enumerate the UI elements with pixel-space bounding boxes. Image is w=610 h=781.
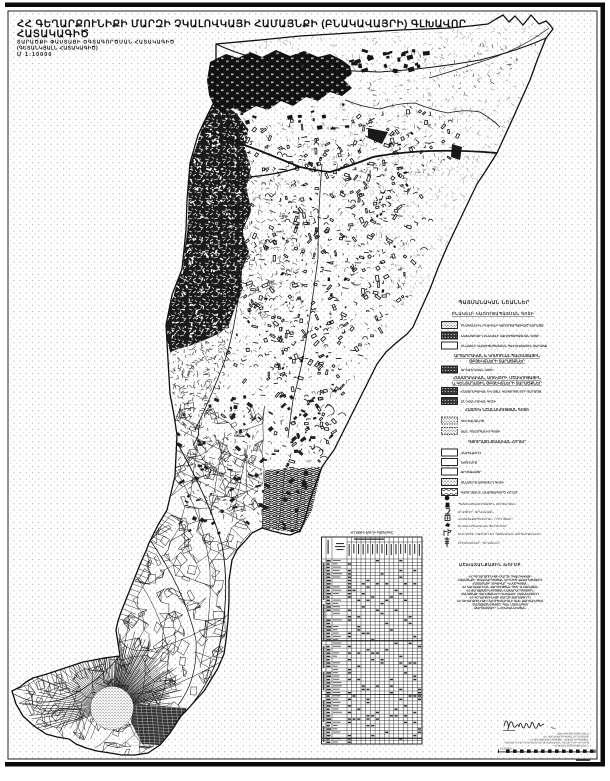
svg-text:ՆԱԽԱԳԾՎՈՂ ԲՆԱԿԵԼԻ ԿԱՌՈՒՑԱՊԱՏՄԱ: ՆԱԽԱԳԾՎՈՂ ԲՆԱԿԵԼԻ ԿԱՌՈՒՑԱՊԱՏՄԱՆ ԳՈՏԻ — [460, 334, 540, 338]
svg-text:ԱՐՈՏԱՎԱՅՐ: ԱՐՈՏԱՎԱՅՐ — [461, 470, 482, 474]
svg-text:ԱՐՏԱԴՐԱԿԱՆ ԳՈՏԻ: ԱՐՏԱԴՐԱԿԱՆ ԳՈՏԻ — [461, 368, 494, 372]
svg-text:ՀԱՍԱՐԱԿԱԿԱՆ ԵՎ ԱՅԼՆ ԿԱՌՈՒՅՑՆԵՐ: ՀԱՍԱՐԱԿԱԿԱՆ ԵՎ ԱՅԼՆ ԿԱՌՈՒՅՑՆԵՐԻ ՏԱՐԱԾՔ — [461, 390, 542, 394]
svg-text:ԵԿԵՂԵՑԻ, ՄԱՏՈՒՌ ԵՎ ՊԱՏՄԱԿԱՆ ՀՈ: ԵԿԵՂԵՑԻ, ՄԱՏՈՒՌ ԵՎ ՊԱՏՄԱԿԱՆ ՀՈՒՇԱՐՁԱՆՆԵՐ — [458, 532, 542, 536]
svg-text:ԽՈՏՀԱՐՔ: ԽՈՏՀԱՐՔ — [461, 461, 478, 465]
svg-text:ԳՅՈՒՂԱՏՆՏԵՍԱԿԱՆ ՀՈՂԵՐ: ԳՅՈՒՂԱՏՆՏԵՍԱԿԱՆ ՀՈՂԵՐ — [468, 439, 526, 444]
svg-text:և ԿԵՆՑԱՂԱՅԻՆ ՕԲՅԵԿՏՆԵՐԻ ՏԱՐԱԾՔ: և ԿԵՆՑԱՂԱՅԻՆ ՕԲՅԵԿՏՆԵՐԻ ՏԱՐԱԾՔՆԵՐ — [452, 381, 542, 386]
svg-text:ՏՆԱՄԵՐՁ-ԱՅԳԵՏԵՂ ԳՈՏԻ: ՏՆԱՄԵՐՁ-ԱՅԳԵՏԵՂ ԳՈՏԻ — [461, 481, 505, 485]
svg-text:ՍԱՆ. ՊԱՇՏՊԱՆԻՉ ԳՈՏԻ: ՍԱՆ. ՊԱՇՏՊԱՆԻՉ ԳՈՏԻ — [461, 430, 501, 434]
svg-text:ՏԱՐԱԾՔԻ ՓԱՍՏԱՑԻ ՕԳՏԱԳՈՐԾՄԱՆ ՀԱ: ՏԱՐԱԾՔԻ ՓԱՍՏԱՑԻ ՕԳՏԱԳՈՐԾՄԱՆ ՀԱՏԱԿԱԳԻԾ — [17, 39, 175, 46]
svg-text:ՀԱՏՈՒԿ ՆՇԱՆԱԿՈՒԹՅԱՆ ԳՈՏԻ: ՀԱՏՈՒԿ ՆՇԱՆԱԿՈՒԹՅԱՆ ԳՈՏԻ — [465, 407, 529, 412]
svg-text:ԱՐՏԱԴՐԱԿԱՆ և ԿՈՄՈՒՆԱԼ-ՊԱՀԵՍՏԱՅ: ԱՐՏԱԴՐԱԿԱՆ և ԿՈՄՈՒՆԱԼ-ՊԱՀԵՍՏԱՅԻՆ — [454, 353, 540, 358]
svg-text:ԲՆԱԿԵԼԻ ԿԱՌՈՒՑԱՊԱՏՄԱՆ ԳՈՏԻ: ԲՆԱԿԵԼԻ ԿԱՌՈՒՑԱՊԱՏՄԱՆ ԳՈՏԻ — [452, 311, 534, 316]
svg-text:ՊԱՏՄԱՄՇԱԿՈՒԹԱՅԻՆ ՀՈՒՇԱՐՁԱՆ: ՊԱՏՄԱՄՇԱԿՈՒԹԱՅԻՆ ՀՈՒՇԱՐՁԱՆ — [458, 502, 516, 506]
svg-text:ԳՅՈՒՂԱՏՆՏ. ԱՆՕԳՏԱԳՈՐԾ ՀՈՂԵՐ: ԳՅՈՒՂԱՏՆՏ. ԱՆՕԳՏԱԳՈՐԾ ՀՈՂԵՐ — [461, 491, 519, 495]
svg-text:0 100 200: 0 100 200 — [500, 747, 512, 751]
svg-text:ՀԱՍԱՐԱԿԱԿԱՆ, ԱՌԵՎՏՐԻ, ՄՇԱԿՈՒԹԱ: ՀԱՍԱՐԱԿԱԿԱՆ, ԱՌԵՎՏՐԻ, ՄՇԱԿՈՒԹԱՅԻՆ — [453, 375, 541, 380]
svg-text:ՕԲՅԵԿՏՆԵՐԻ ՏԱՐԱԾՔՆԵՐ: ՕԲՅԵԿՏՆԵՐԻ ՏԱՐԱԾՔՆԵՐ — [469, 359, 525, 364]
svg-text:ՀԱՏԱԿԱԳԻԾ: ՀԱՏԱԿԱԳԻԾ — [17, 29, 89, 40]
svg-text:ՀԱՄԱՅՆՔԱՊԵՏԱՐԱՆ, ԴՊՐՈՑՆԵՐ: ՀԱՄԱՅՆՔԱՊԵՏԱՐԱՆ, ԴՊՐՈՑՆԵՐ — [458, 517, 513, 521]
svg-text:ԲՆԱԿԵԼԻՈՎ, ԲՆԱԿԵԼԻ ԿԱՌՈՒՑԱՊԱՏՎ: ԲՆԱԿԵԼԻՈՎ, ԲՆԱԿԵԼԻ ԿԱՌՈՒՑԱՊԱՏՎԱԾ ՏԱՐԱԾՔ — [461, 324, 544, 328]
svg-text:ԳԵՐԵԶՄԱՆՈՑ: ԳԵՐԵԶՄԱՆՈՑ — [461, 419, 485, 423]
svg-text:ԱՂԲՅՈՒՐ, ՋՐԱՎԱԶԱՆ: ԱՂԲՅՈՒՐ, ՋՐԱՎԱԶԱՆ — [458, 510, 494, 514]
svg-text:ԲՆԱԿԵԼԻ ԿԱՌՈՒՑԱՊԱՏՄԱՆ ՊԱՀՈՒՍՏԱ: ԲՆԱԿԵԼԻ ԿԱՌՈՒՑԱՊԱՏՄԱՆ ՊԱՀՈՒՍՏԱՅԻՆ ՏԱՐԱԾՔ — [461, 344, 548, 348]
svg-text:ԸՆԴՀԱՆՐԱԿԱՆ ԳՈՏԻ: ԸՆԴՀԱՆՐԱԿԱՆ ԳՈՏԻ — [461, 400, 497, 404]
svg-text:(ԳԵՏԱՆԿՅԱԼՆ ՀԱՏԱԿԱԳԻԾ): (ԳԵՏԱՆԿՅԱԼՆ ՀԱՏԱԿԱԳԻԾ) — [17, 46, 98, 52]
svg-text:ՀՈՂԱՅԻՆ ՖՈՆԴԻ ԲԱՇԽՈՒՄԸ: ՀՈՂԱՅԻՆ ՖՈՆԴԻ ԲԱՇԽՈՒՄԸ — [351, 531, 395, 535]
svg-text:ՊԱՅՄԱՆԱԿԱՆ ՆՇԱՆՆԵՐ: ՊԱՅՄԱՆԱԿԱՆ ՆՇԱՆՆԵՐ — [458, 300, 529, 306]
svg-text:ԱՆԱՍՆԱՊԱՀԱԿԱՆ ՖԵՐՄԱՆԵՐ: ԱՆԱՍՆԱՊԱՀԱԿԱՆ ՖԵՐՄԱՆԵՐ — [458, 524, 507, 528]
svg-text:Մ 1:10000: Մ 1:10000 — [17, 51, 53, 58]
svg-text:ՎԱՐԵԼԱՀՈՂ: ՎԱՐԵԼԱՀՈՂ — [461, 451, 482, 455]
svg-text:ՔԱՐՏԵԶԱԳԻՐ` Ն.ՀՈՎՀԱՆՆԻՍՅԱՆ: ՔԱՐՏԵԶԱԳԻՐ` Ն.ՀՈՎՀԱՆՆԻՍՅԱՆ — [474, 606, 526, 610]
svg-text:ԲՈՒԺԱԿԵՏԵՐ, ԴԵՂԱՏՆԵՐ: ԲՈՒԺԱԿԵՏԵՐ, ԴԵՂԱՏՆԵՐ — [458, 541, 500, 545]
svg-text:ԵՐԵՎԱՆ 2007 ԹՎԱԿԱՆԻՆ: ԵՐԵՎԱՆ 2007 ԹՎԱԿԱՆԻՆ — [555, 744, 590, 748]
svg-text:ԱՇԽԱՏԱՆՔԱՅԻՆ ԽՈՒՄԲ: ԱՇԽԱՏԱՆՔԱՅԻՆ ԽՈՒՄԲ — [459, 562, 521, 567]
